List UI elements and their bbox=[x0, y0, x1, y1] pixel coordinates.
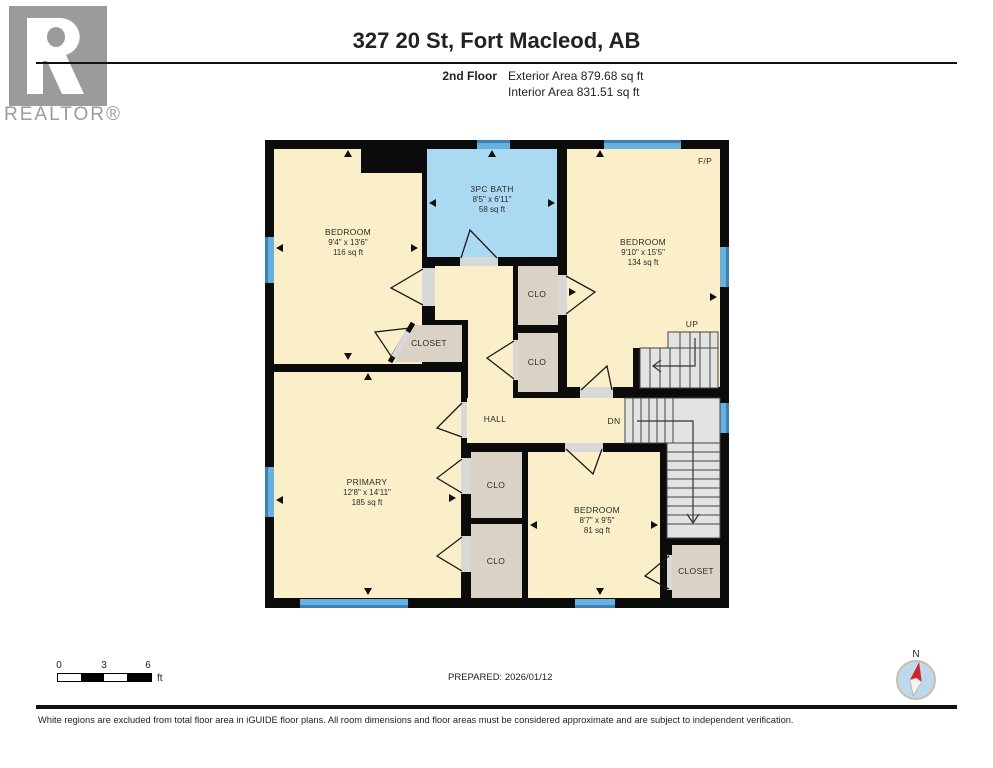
label-clo: CLO bbox=[487, 480, 505, 490]
room-label-bedroom-top-right: BEDROOM9'10" x 15'5"134 sq ft bbox=[620, 237, 666, 269]
label-dn: DN bbox=[608, 416, 621, 426]
label-closet: CLOSET bbox=[411, 338, 447, 348]
realtor-logo bbox=[9, 6, 107, 106]
room-label-bedroom-top-left: BEDROOM9'4" x 13'6"116 sq ft bbox=[325, 227, 371, 259]
scale-tick: 0 bbox=[56, 660, 62, 671]
disclaimer-text: White regions are excluded from total fl… bbox=[38, 715, 958, 725]
label-clo: CLO bbox=[528, 289, 546, 299]
header-divider bbox=[36, 62, 957, 64]
footer-divider bbox=[36, 705, 957, 709]
compass-icon: N bbox=[891, 644, 941, 704]
room-label-bedroom-bottom-right: BEDROOM8'7" x 9'5"81 sq ft bbox=[574, 505, 620, 537]
label-hall: HALL bbox=[484, 414, 506, 424]
room-label-primary: PRIMARY12'8" x 14'11"185 sq ft bbox=[343, 477, 391, 509]
interior-area: Interior Area 831.51 sq ft bbox=[508, 85, 639, 99]
label-fireplace: F/P bbox=[698, 156, 712, 166]
exterior-area: Exterior Area 879.68 sq ft bbox=[508, 69, 643, 83]
label-up: UP bbox=[686, 319, 698, 329]
scale-tick: 6 bbox=[145, 660, 151, 671]
prepared-date: PREPARED: 2026/01/12 bbox=[448, 672, 552, 683]
scale-unit: ft bbox=[157, 673, 163, 684]
scale-bar: 0 3 6 ft bbox=[57, 660, 177, 682]
compass-north-label: N bbox=[912, 649, 919, 660]
label-clo: CLO bbox=[487, 556, 505, 566]
floor-plan: BEDROOM9'4" x 13'6"116 sq ft 3PC BATH8'5… bbox=[265, 140, 729, 608]
label-closet: CLOSET bbox=[678, 566, 714, 576]
scale-tick: 3 bbox=[101, 660, 107, 671]
room-label-bath: 3PC BATH8'5" x 6'11"58 sq ft bbox=[470, 184, 513, 216]
page-title: 327 20 St, Fort Macleod, AB bbox=[0, 28, 993, 54]
label-clo: CLO bbox=[528, 357, 546, 367]
realtor-wordmark: REALTOR® bbox=[4, 104, 134, 126]
floor-label: 2nd Floor bbox=[442, 69, 497, 83]
